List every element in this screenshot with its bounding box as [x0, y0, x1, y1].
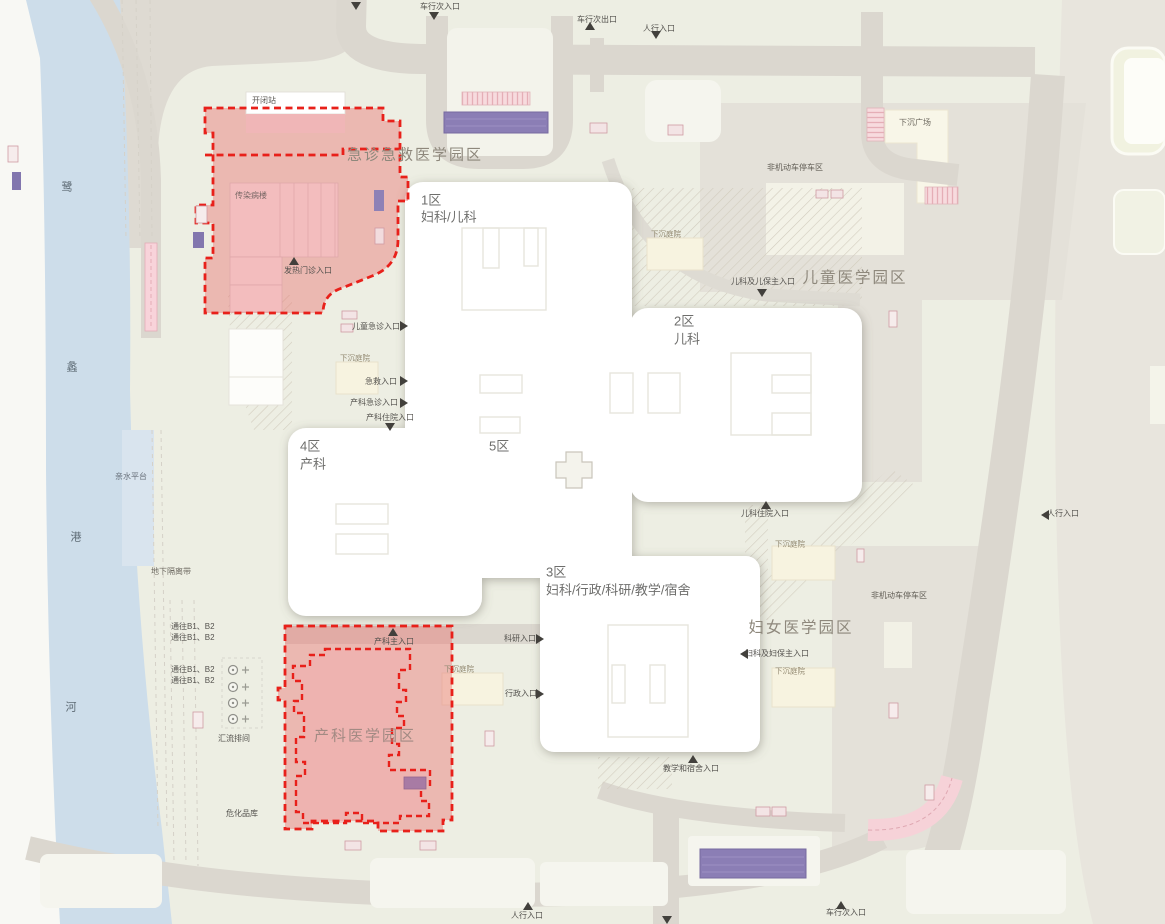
utility-icon [889, 703, 898, 718]
garage-ramp-top [444, 112, 548, 133]
crosswalk-ne-horizontal [925, 187, 958, 204]
site-plan-page: 车行次入口车行次出口人行入口急诊急救医学园区开闭站传染病楼发热门诊入口1区妇科/… [0, 0, 1165, 924]
bench-icon [831, 190, 843, 198]
utility-icon [193, 712, 203, 728]
switch-station-box [246, 92, 345, 114]
utility-icon [375, 228, 384, 244]
district2-building [630, 308, 862, 502]
obstetrics-zone [278, 626, 452, 831]
parking-right-building [884, 622, 912, 668]
bench-icon [342, 311, 357, 319]
site-plan-graphics [0, 0, 1165, 924]
bench-icon [668, 125, 683, 135]
utility-icon [196, 206, 207, 223]
utility-icon [925, 785, 934, 800]
ramp-icon-purple [12, 172, 21, 190]
utility-icon [8, 146, 18, 162]
bench-icon [756, 807, 770, 816]
utility-icon [857, 549, 864, 562]
ramp-icon-purple [193, 232, 204, 248]
switch-station-building [246, 114, 345, 133]
utility-icon [889, 311, 897, 327]
bench-icon [772, 807, 786, 816]
utility-icon [485, 731, 494, 746]
bench-icon [420, 841, 436, 850]
ramp-icon-purple [374, 190, 384, 211]
district4-building [288, 428, 482, 616]
crosswalk-ne-vertical [867, 108, 884, 141]
bench-icon [590, 123, 607, 133]
fever-clinic-building-south [229, 329, 283, 405]
district3-building [540, 556, 760, 752]
garage-ramp-bottom [700, 849, 806, 878]
waterfront-platform-strip [122, 430, 154, 566]
bench-icon [816, 190, 828, 198]
crosswalk-top [462, 92, 530, 105]
bench-icon [345, 841, 361, 850]
obstetrics-ramp [404, 777, 426, 789]
bench-icon [341, 324, 353, 332]
